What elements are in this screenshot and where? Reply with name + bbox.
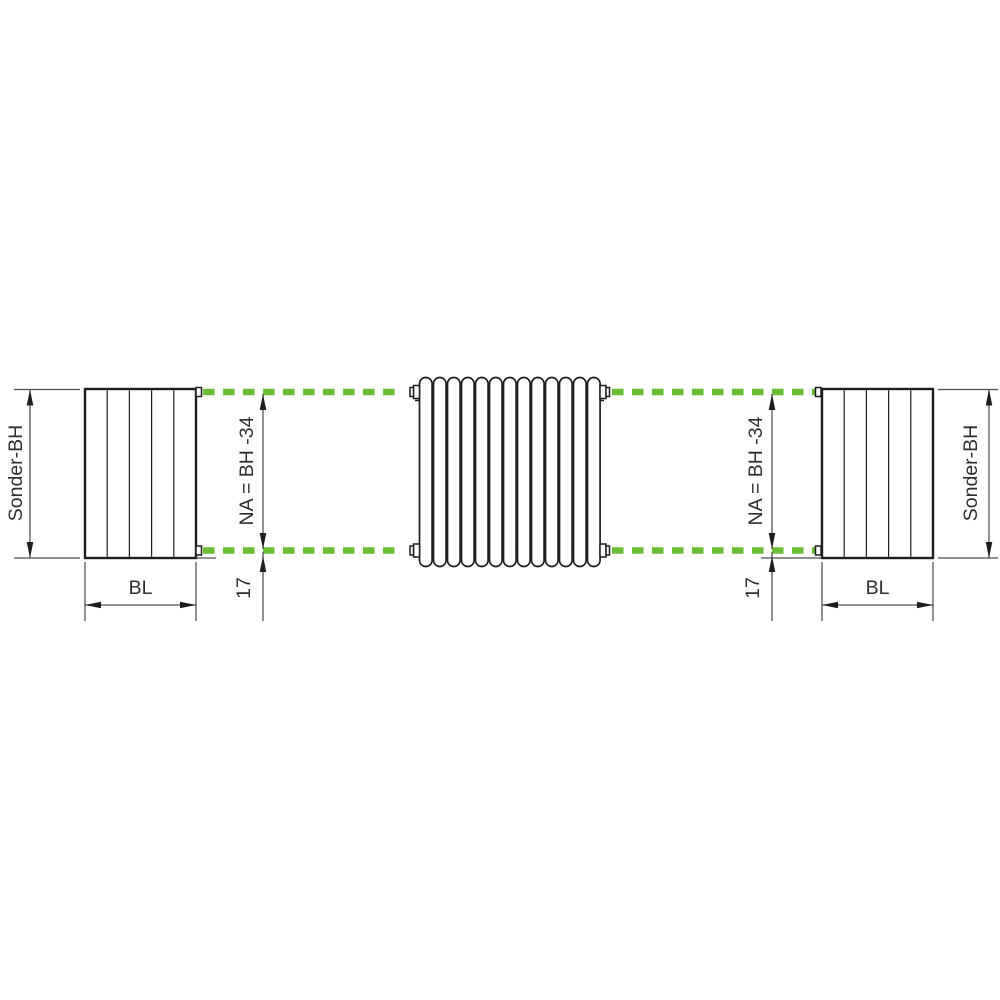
radiator-tubes: [420, 378, 601, 567]
radiator-tube: [448, 378, 461, 567]
dimension-right-width: BL: [822, 562, 933, 621]
radiator-dimension-diagram: Sonder-BH BL NA = BH -34 17 NA = BH -34 …: [0, 0, 1000, 1000]
radiator-tube: [518, 378, 531, 567]
left-side-view: [85, 388, 202, 559]
arrow-down: [986, 542, 993, 558]
left-side-view-body: [85, 389, 196, 558]
arrow-up: [260, 394, 267, 410]
arrow-down: [260, 533, 267, 549]
dimension-right-height: Sonder-BH: [938, 390, 998, 559]
label-left-offset: 17: [233, 577, 255, 599]
radiator-tube: [560, 378, 573, 567]
radiator-tube: [476, 378, 489, 567]
center-front-view: [410, 378, 610, 567]
dimension-left-offset: 17: [196, 552, 266, 621]
left-bottom-connection-nipple: [196, 546, 202, 555]
radiator-tube: [574, 378, 587, 567]
center-top-left-nipple: [414, 386, 420, 399]
label-right-offset: 17: [742, 577, 764, 599]
radiator-tube: [462, 378, 475, 567]
dimension-right-offset: 17: [742, 552, 822, 621]
center-top-right-nipple: [600, 386, 606, 399]
arrow-down: [769, 533, 776, 549]
label-left-hub-distance: NA = BH -34: [236, 416, 258, 525]
center-bottom-right-nipple: [600, 544, 606, 557]
label-right-height: Sonder-BH: [960, 425, 982, 521]
arrow-left: [822, 602, 838, 609]
arrow-left: [85, 602, 101, 609]
center-top-left-nipple-cap: [410, 388, 414, 397]
center-bottom-left-nipple-cap: [410, 546, 414, 555]
radiator-tube: [532, 378, 545, 567]
arrow-up: [769, 394, 776, 410]
radiator-tube: [490, 378, 503, 567]
label-right-hub-distance: NA = BH -34: [745, 416, 767, 525]
center-top-right-nipple-cap: [606, 388, 610, 397]
center-bottom-right-nipple-cap: [606, 546, 610, 555]
right-top-connection-nipple: [816, 388, 822, 397]
left-top-connection-nipple: [196, 388, 202, 397]
dimension-left-height: Sonder-BH: [5, 390, 80, 559]
label-left-width: BL: [129, 577, 153, 599]
center-bottom-left-nipple: [414, 544, 420, 557]
arrow-up: [260, 556, 267, 572]
dimension-right-hub-distance: NA = BH -34: [745, 394, 775, 549]
radiator-tube: [504, 378, 517, 567]
arrow-right: [180, 602, 196, 609]
dimension-left-width: BL: [85, 562, 196, 621]
radiator-tube: [546, 378, 559, 567]
label-right-width: BL: [866, 577, 890, 599]
arrow-right: [917, 602, 933, 609]
right-bottom-connection-nipple: [816, 546, 822, 555]
radiator-tube: [434, 378, 447, 567]
radiator-tube: [588, 378, 601, 567]
label-left-height: Sonder-BH: [5, 425, 27, 521]
arrow-up: [27, 390, 34, 406]
right-side-view: [816, 388, 934, 559]
arrow-down: [27, 542, 34, 558]
right-side-view-body: [822, 389, 933, 558]
dimension-left-hub-distance: NA = BH -34: [236, 394, 266, 549]
arrow-up: [986, 390, 993, 406]
radiator-tube: [420, 378, 433, 567]
